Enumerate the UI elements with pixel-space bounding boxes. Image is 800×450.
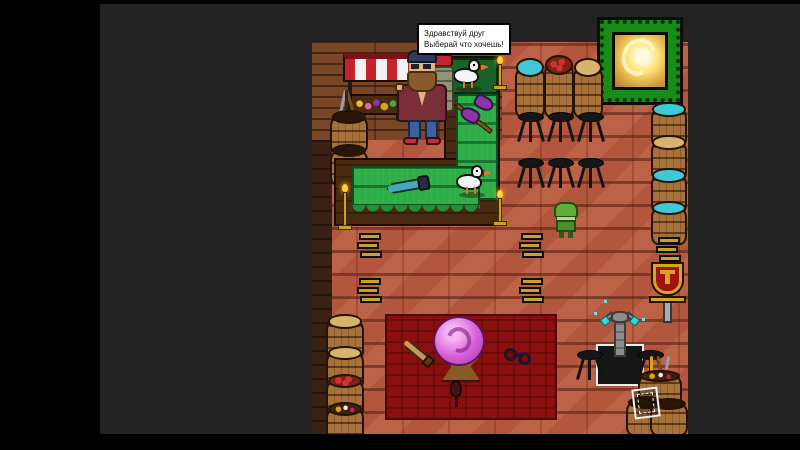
cyan-gem-icon	[600, 315, 611, 326]
standard-crossbar	[649, 296, 686, 303]
stool-leg	[547, 166, 556, 188]
merchant-shoe	[426, 137, 441, 145]
rat[interactable]	[446, 377, 466, 409]
flame-icon	[342, 184, 348, 192]
tablecloth-fringe	[352, 205, 480, 219]
bird-beak-icon	[483, 170, 492, 177]
orb-swirl	[443, 323, 476, 357]
merchant-shoe	[403, 137, 418, 145]
gold-ingot-stack[interactable]	[519, 278, 545, 304]
stool-leg	[589, 120, 592, 142]
candlestick[interactable]	[493, 190, 507, 226]
shield-icon	[653, 264, 682, 294]
rat-tail	[455, 396, 458, 407]
merchant-beard	[407, 71, 437, 92]
stool-leg	[517, 120, 526, 142]
flame-icon	[497, 190, 503, 198]
gold-bar	[656, 246, 678, 253]
gold-bar	[519, 287, 541, 294]
barrel-top	[516, 58, 544, 77]
stool-leg	[566, 120, 575, 142]
bar-stool[interactable]	[547, 158, 575, 190]
candlestick[interactable]	[338, 184, 352, 230]
sparkle-icon	[604, 300, 607, 303]
gold-bar	[521, 278, 543, 285]
gold-bar	[359, 278, 381, 285]
barrel-top	[640, 370, 681, 382]
battle-axe[interactable]	[452, 96, 500, 146]
cyan-gem-icon	[629, 315, 640, 326]
seagull[interactable]	[452, 58, 490, 92]
bird-head	[471, 165, 483, 178]
merchant-hand	[395, 83, 404, 92]
bar-stool[interactable]	[547, 112, 575, 144]
seagull[interactable]	[455, 164, 493, 198]
gold-bar	[519, 242, 541, 249]
candle-base	[493, 221, 507, 226]
barrel-top	[545, 55, 573, 75]
gold-ingot-stack[interactable]	[656, 237, 682, 263]
barrel-top	[328, 314, 363, 329]
gold-bar	[357, 242, 379, 249]
barrel-top	[652, 201, 685, 215]
idol-head	[611, 311, 629, 323]
portal[interactable]	[600, 20, 680, 102]
barrel-apples[interactable]	[544, 55, 574, 118]
rat-body	[450, 380, 462, 397]
bar-stool[interactable]	[576, 350, 604, 382]
stool-leg	[596, 166, 605, 188]
rod	[345, 90, 348, 112]
barrel-top	[652, 135, 685, 150]
stool-leg	[547, 120, 556, 142]
letterbox-bottom	[100, 434, 800, 450]
crystal-ball[interactable]	[433, 316, 485, 366]
gold-bar	[658, 237, 680, 244]
idol-torso	[614, 321, 626, 357]
shackles[interactable]	[504, 346, 534, 368]
sparkle-icon	[594, 312, 597, 315]
stool-leg	[589, 166, 592, 188]
candle-stick	[498, 64, 502, 86]
stool-leg	[588, 358, 591, 380]
stool-leg	[566, 166, 575, 188]
stool-leg	[576, 358, 585, 380]
gold-bar	[522, 296, 544, 303]
gold-bar	[521, 233, 543, 240]
npc-body	[556, 220, 576, 232]
stool-leg	[517, 166, 526, 188]
stool-leg	[536, 166, 545, 188]
barrel-top	[574, 58, 602, 77]
bird-head	[468, 59, 480, 72]
bar-stool[interactable]	[517, 112, 545, 144]
candle-stick	[498, 198, 502, 222]
gold-ingot-stack[interactable]	[519, 233, 545, 259]
picture-frame-icon[interactable]	[631, 387, 660, 420]
dialogue-bubble[interactable]: Здравствуй друг Выберай что хочешь!	[417, 23, 511, 55]
dialogue-line-2: Выберай что хочешь!	[424, 39, 504, 50]
gold-bar	[360, 251, 382, 258]
gold-bar	[359, 233, 381, 240]
letterbox-left	[0, 0, 100, 450]
stool-leg	[559, 120, 562, 142]
stool-leg	[577, 166, 586, 188]
shackle-bar	[514, 354, 523, 357]
rod	[665, 356, 670, 370]
gold-bar	[357, 287, 379, 294]
letterbox-top	[100, 0, 800, 4]
customer-npc[interactable]	[552, 202, 580, 238]
candle-stick	[343, 192, 347, 226]
sparkle-icon	[642, 318, 645, 321]
gold-bar	[522, 251, 544, 258]
stool-leg	[529, 120, 532, 142]
dialogue-line-1: Здравствуй друг	[424, 28, 504, 39]
stool-leg	[596, 120, 605, 142]
bird-feet	[466, 187, 476, 194]
stool-leg	[536, 120, 545, 142]
bar-stool[interactable]	[517, 158, 545, 190]
gold-bar	[659, 255, 681, 262]
dagger-blade	[385, 178, 420, 195]
candlestick[interactable]	[493, 56, 507, 90]
candle-base	[338, 225, 352, 230]
game-viewport: Здравствуй друг Выберай что хочешь!	[0, 0, 800, 450]
barrel-top	[652, 102, 685, 117]
bar-stool[interactable]	[577, 112, 605, 144]
candle-base	[493, 85, 507, 90]
stool-leg	[559, 166, 562, 188]
barrel-top	[652, 168, 685, 183]
barrel-water[interactable]	[515, 58, 545, 118]
stool-leg	[529, 166, 532, 188]
gold-bar	[360, 296, 382, 303]
stone-idol[interactable]	[599, 308, 641, 360]
bird-beak-icon	[480, 64, 489, 71]
barrel-grain[interactable]	[573, 58, 603, 118]
stool-leg	[577, 120, 586, 142]
banner-standard[interactable]	[649, 264, 687, 324]
flame-icon	[497, 56, 503, 64]
bar-stool[interactable]	[577, 158, 605, 190]
gold-ingot-stack[interactable]	[357, 278, 383, 304]
bird-feet	[463, 81, 473, 88]
npc-legs	[559, 232, 573, 238]
gold-ingot-stack[interactable]	[357, 233, 383, 259]
merchant-npc[interactable]	[393, 50, 455, 146]
dagger-hilt	[416, 174, 430, 191]
stool-leg	[595, 358, 604, 380]
